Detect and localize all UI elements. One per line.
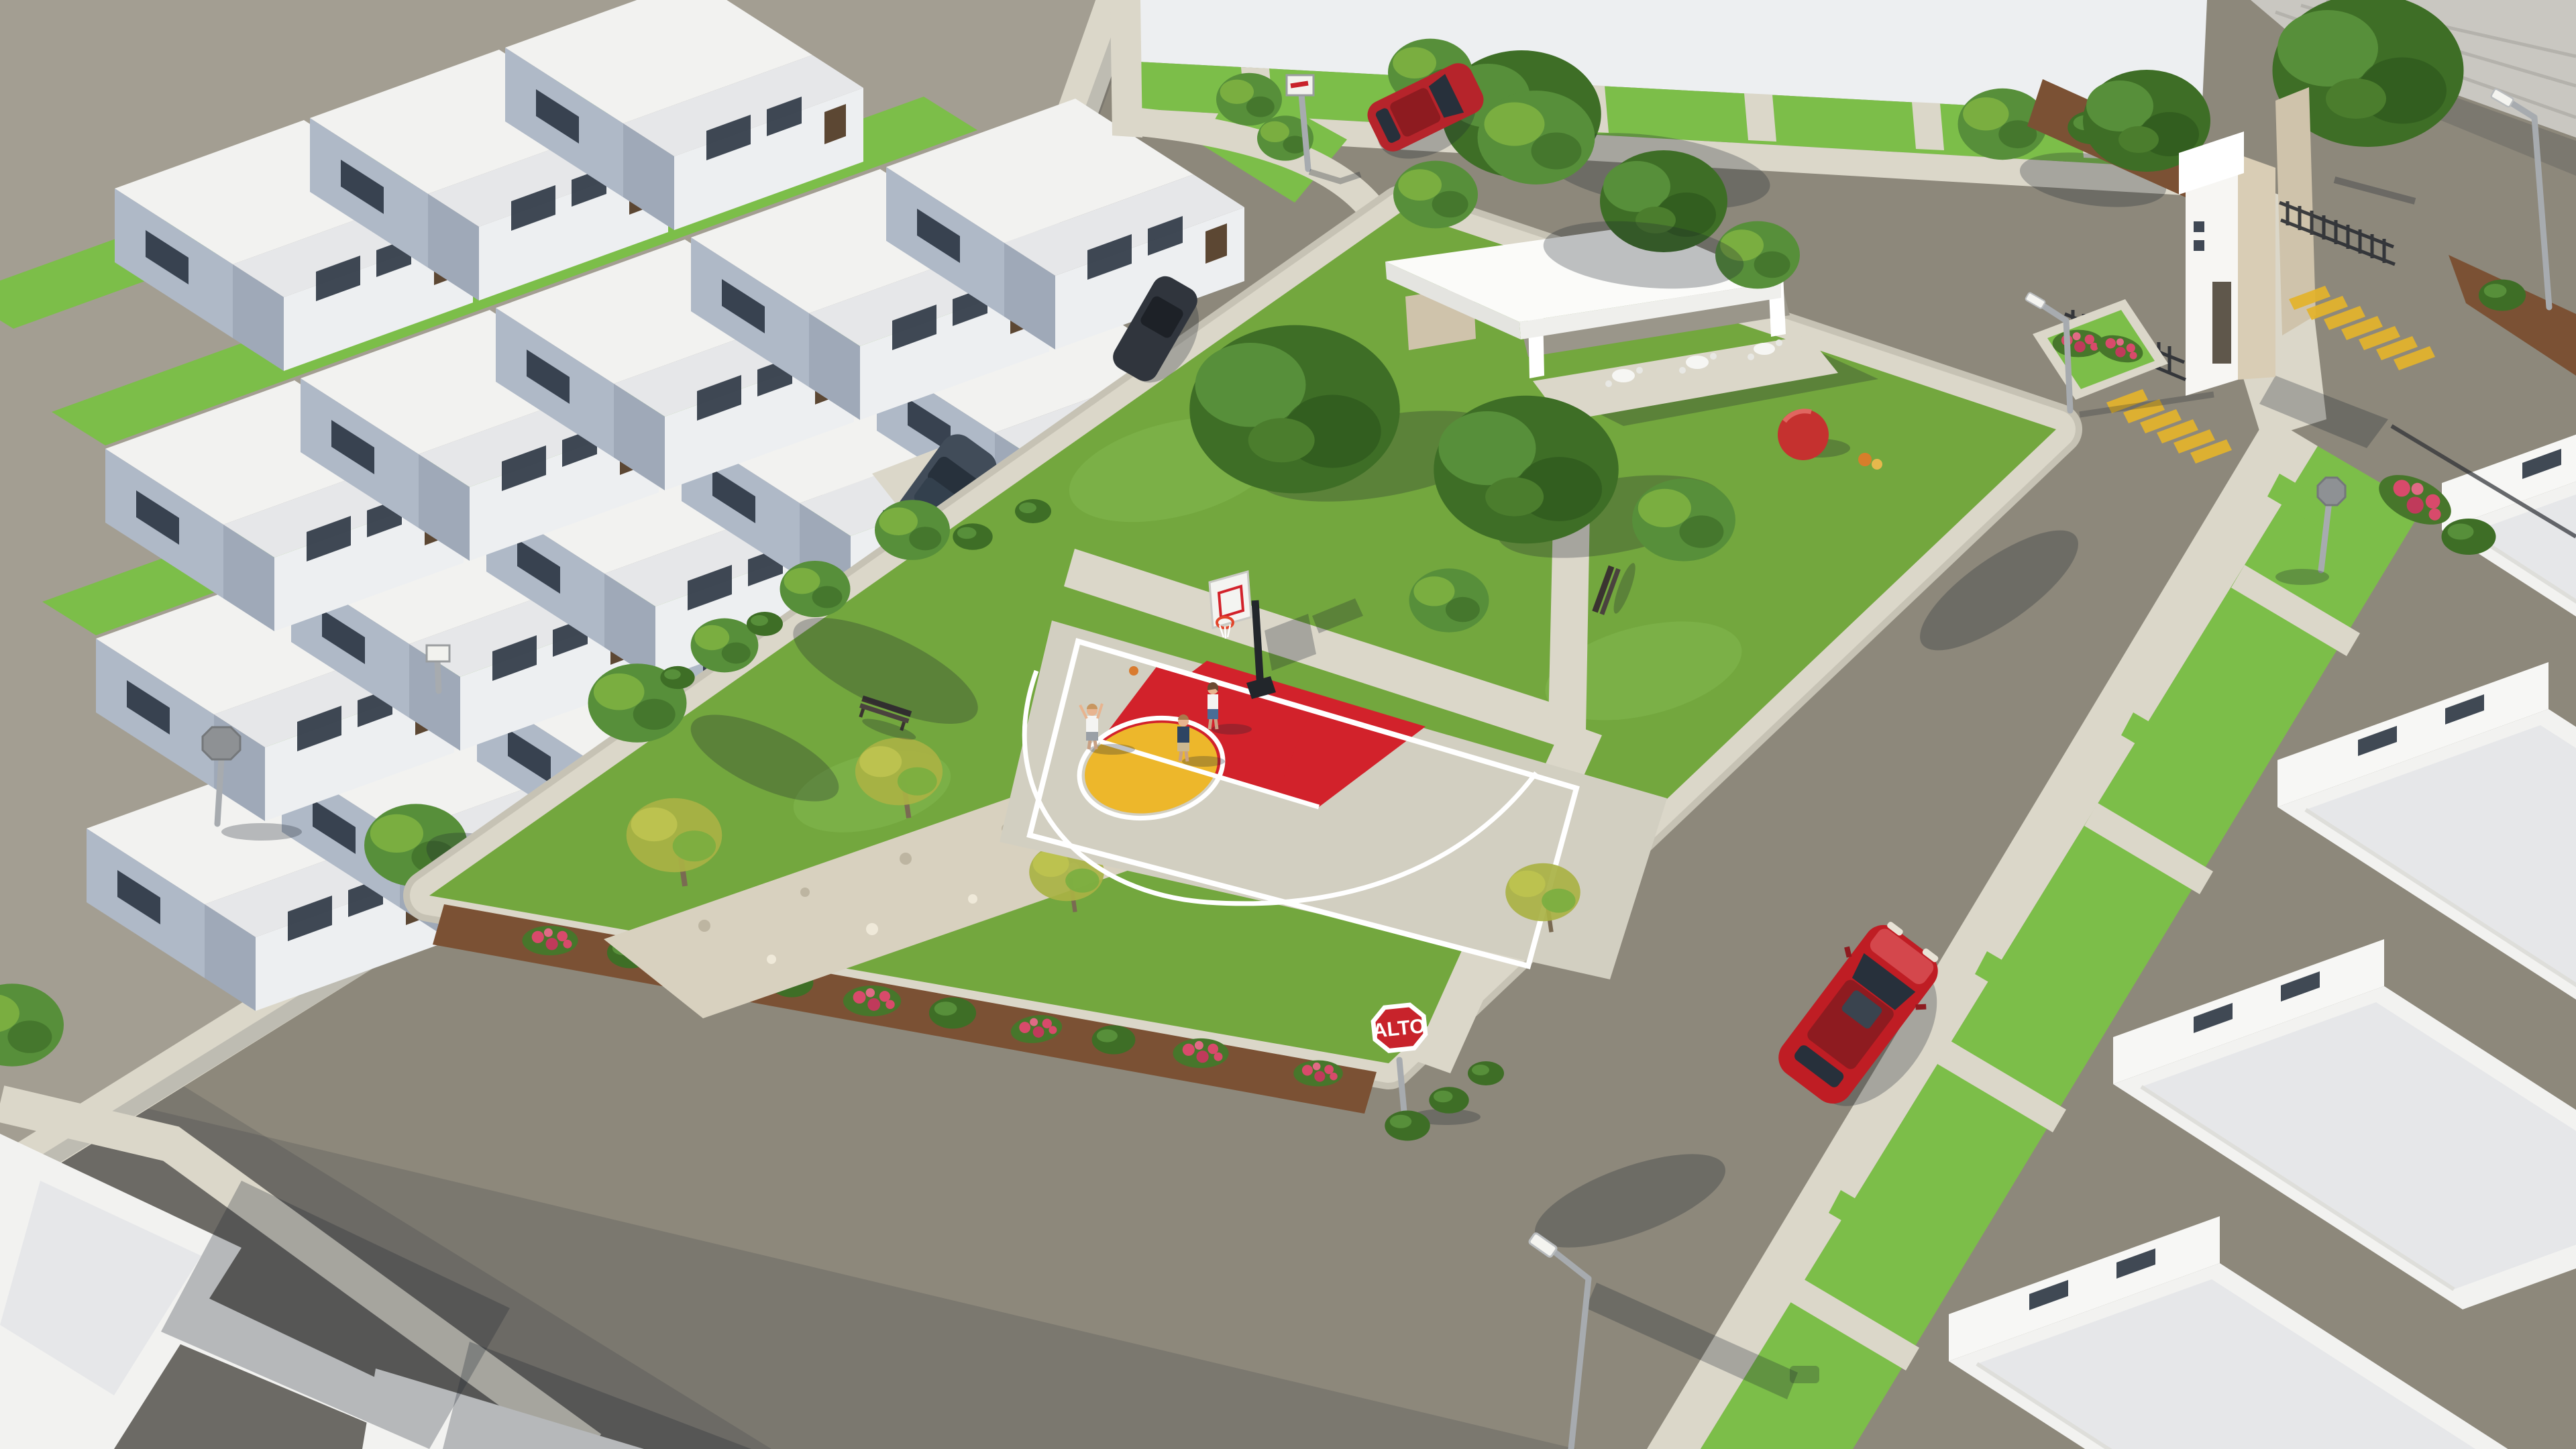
aerial-community-render: ALTO (0, 0, 2576, 1449)
basketball (1129, 666, 1138, 676)
scene-canvas: ALTO (0, 0, 2576, 1449)
